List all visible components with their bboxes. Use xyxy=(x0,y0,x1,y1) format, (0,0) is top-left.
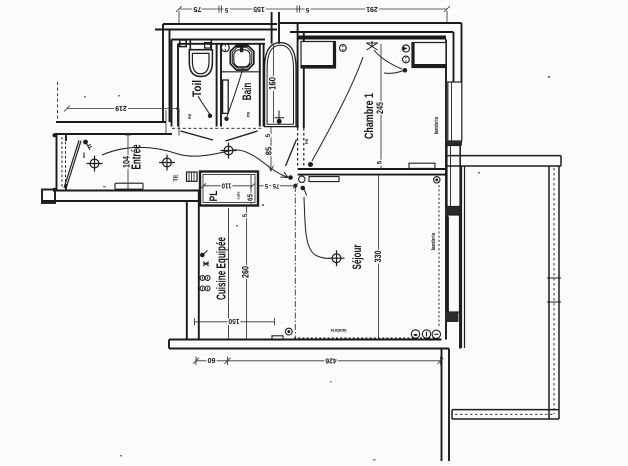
svg-text:75: 75 xyxy=(194,5,202,14)
svg-text:lambris: lambris xyxy=(431,232,437,250)
svg-text:TE: TE xyxy=(174,174,180,181)
svg-text:cuis: cuis xyxy=(236,191,241,200)
svg-text:5: 5 xyxy=(265,133,272,137)
svg-text:5: 5 xyxy=(305,6,309,13)
svg-text:Bain: Bain xyxy=(242,83,254,101)
svg-text:5: 5 xyxy=(377,160,384,164)
svg-text:110: 110 xyxy=(221,181,231,188)
svg-text:104: 104 xyxy=(122,156,132,168)
svg-text:lambris: lambris xyxy=(330,328,347,333)
svg-text:PB: PB xyxy=(246,112,251,118)
svg-text:160: 160 xyxy=(268,77,278,90)
svg-text:245: 245 xyxy=(375,102,385,114)
svg-text:426: 426 xyxy=(325,357,337,366)
svg-text:155: 155 xyxy=(253,5,265,14)
svg-text:5: 5 xyxy=(224,6,228,13)
svg-text:60: 60 xyxy=(208,356,216,365)
svg-text:Entrée: Entrée xyxy=(130,144,144,169)
svg-text:Cuisine Equipée: Cuisine Equipée xyxy=(215,237,229,300)
svg-text:Toil: Toil xyxy=(192,80,204,97)
svg-text:Séjour: Séjour xyxy=(350,244,364,269)
svg-text:65: 65 xyxy=(246,194,255,201)
svg-text:260: 260 xyxy=(241,266,251,278)
svg-text:PB: PB xyxy=(187,114,192,120)
svg-text:85: 85 xyxy=(264,147,274,156)
svg-text:75: 75 xyxy=(272,182,279,188)
svg-text:Chambre 1: Chambre 1 xyxy=(362,93,376,139)
svg-text:lambris: lambris xyxy=(434,116,440,134)
svg-text:219: 219 xyxy=(115,104,127,113)
svg-text:330: 330 xyxy=(373,251,383,263)
svg-text:PB: PB xyxy=(304,139,309,145)
svg-text:PL: PL xyxy=(208,190,220,201)
svg-text:291: 291 xyxy=(366,5,378,14)
svg-text:150: 150 xyxy=(229,317,240,326)
